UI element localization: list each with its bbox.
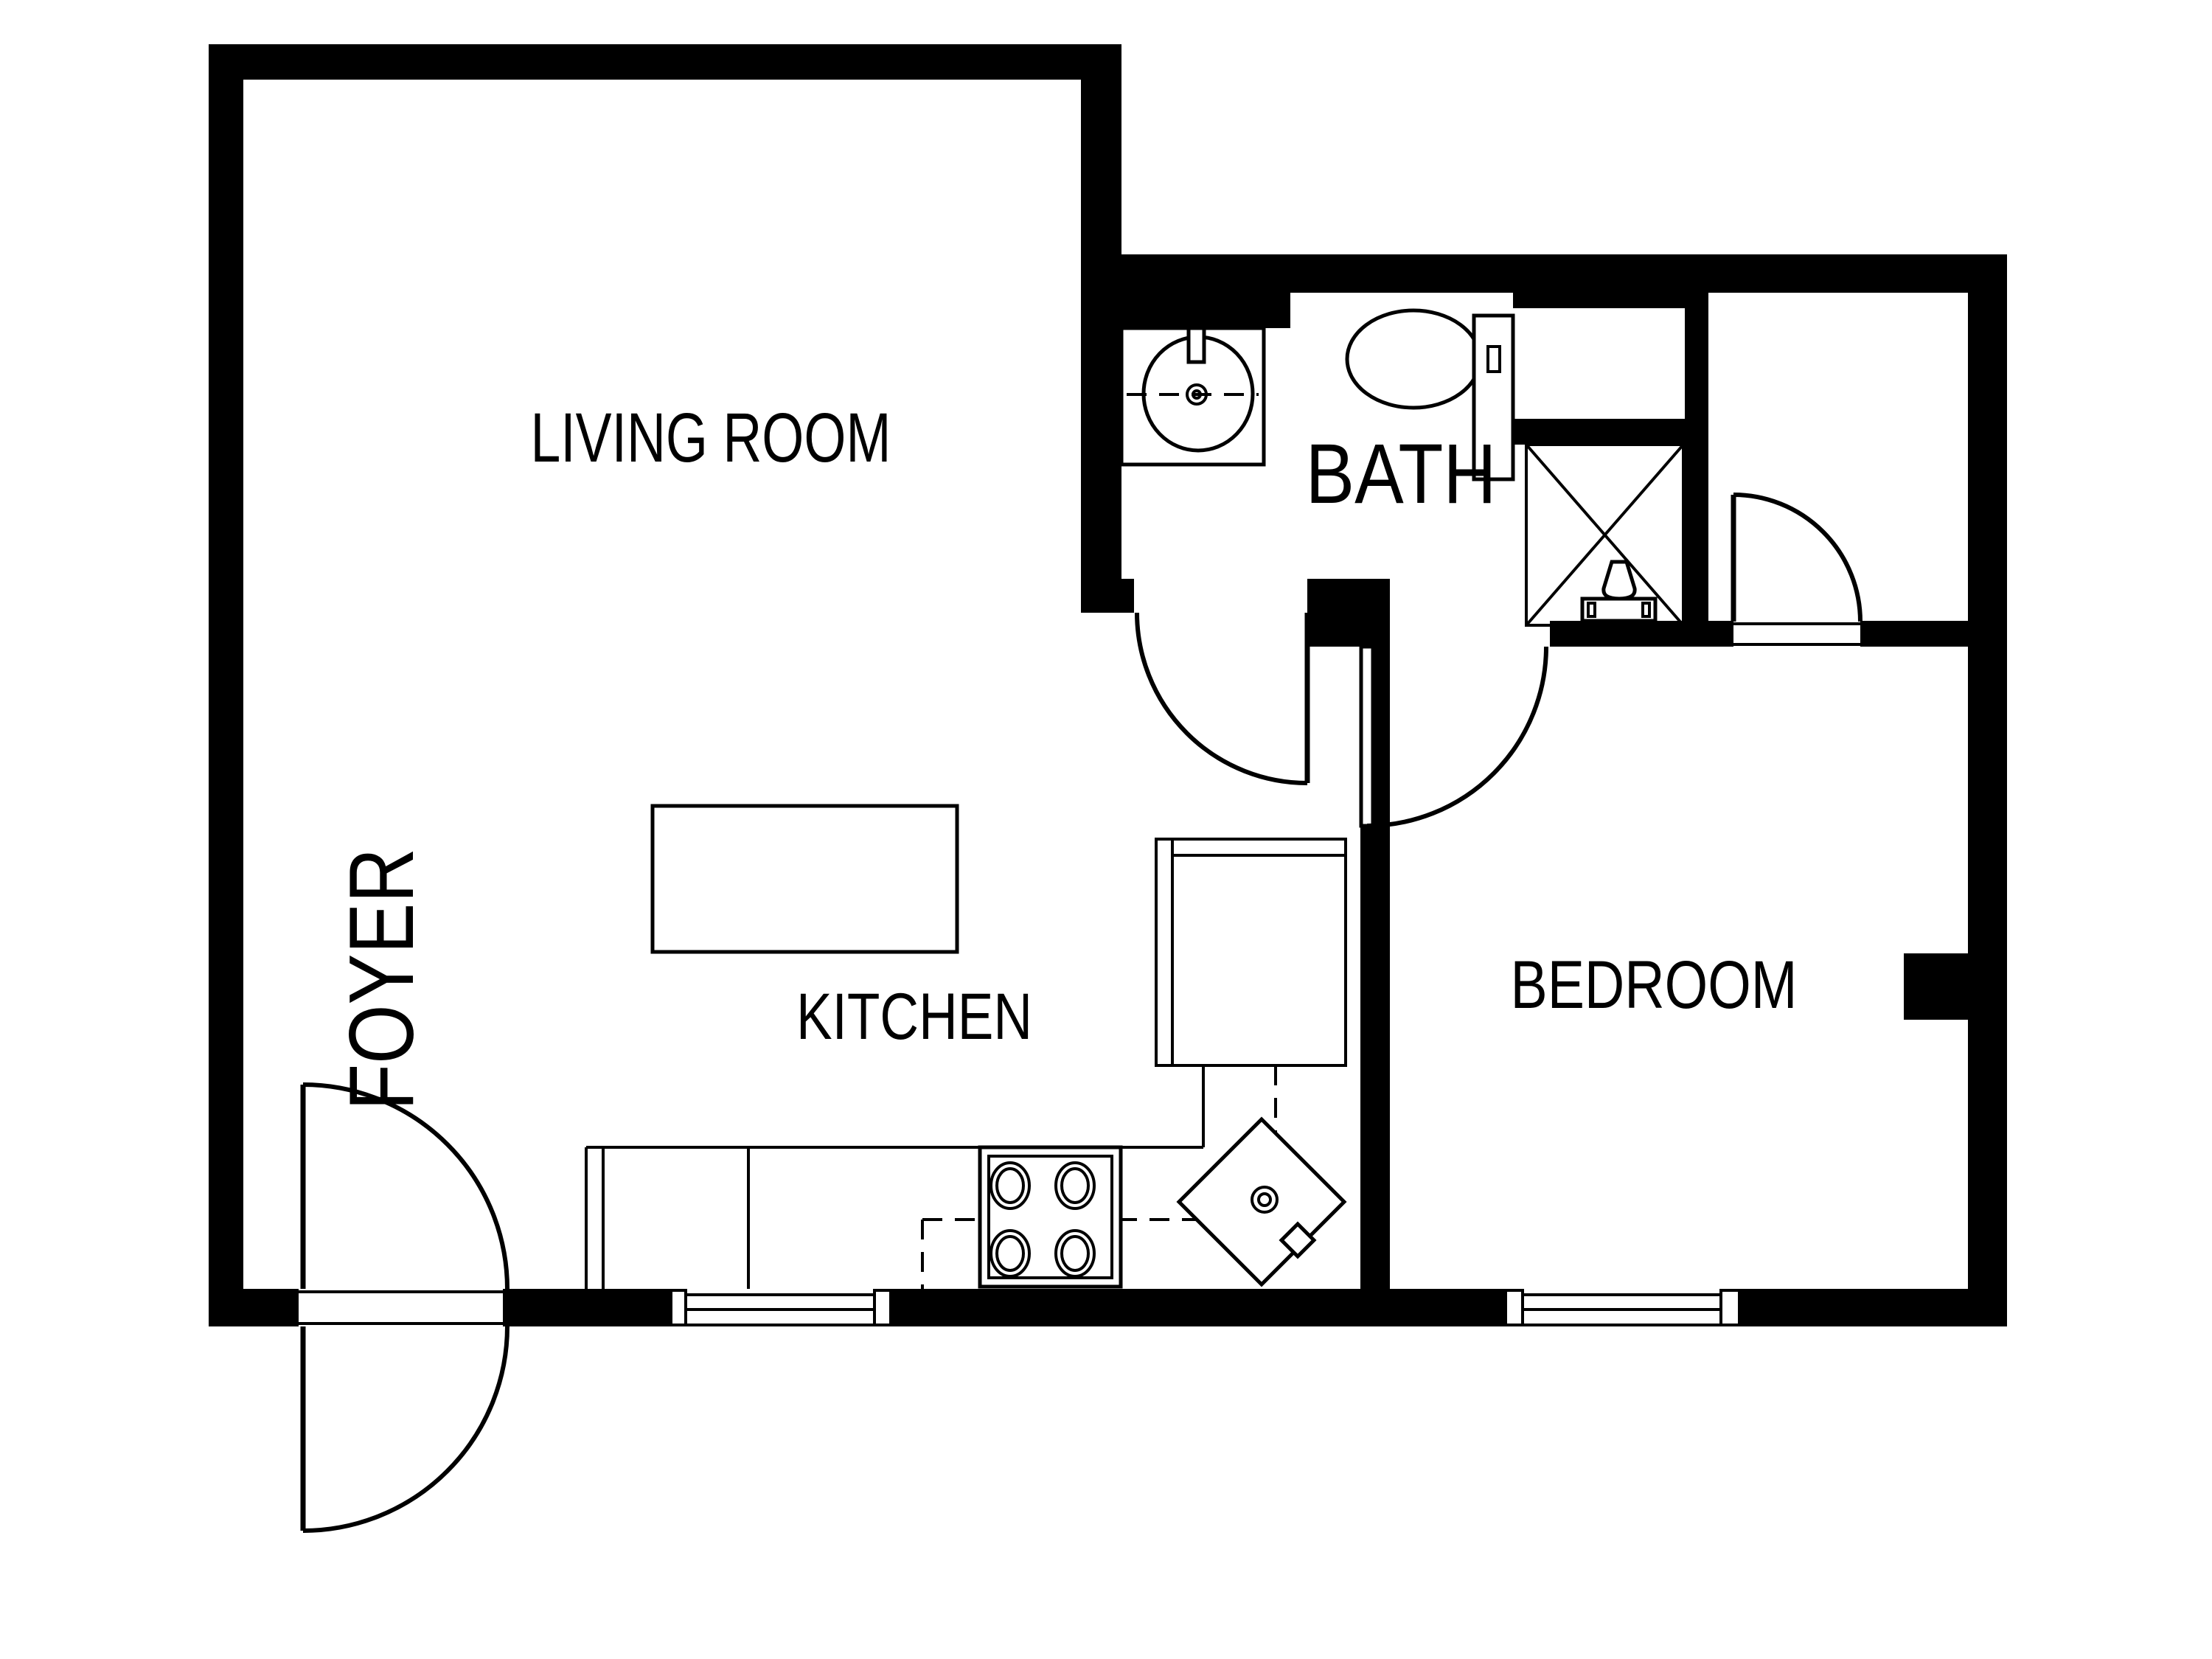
door-leaf	[1361, 647, 1373, 826]
wall-left-exterior	[209, 44, 243, 1326]
wall-bedroom-north-b	[1860, 621, 1968, 647]
door-opening	[299, 1289, 503, 1326]
bathroom-sink-icon	[1121, 328, 1264, 465]
bath-door	[1137, 613, 1307, 783]
bedroom-window	[1506, 1289, 1739, 1326]
door-swing-arc	[1137, 613, 1307, 783]
counter-upper	[1156, 839, 1346, 1065]
bath-label: BATH	[1306, 427, 1497, 521]
shower-head	[1604, 562, 1635, 599]
floor-plan-canvas: LIVING ROOM BATH KITCHEN BEDROOM FOYER	[0, 0, 2212, 1659]
bedroom-label: BEDROOM	[1511, 947, 1798, 1023]
room-labels: LIVING ROOM BATH KITCHEN BEDROOM FOYER	[331, 399, 1798, 1110]
sink-faucet	[1189, 328, 1204, 362]
door-swing-arc	[303, 1085, 507, 1289]
closet-door	[1733, 495, 1860, 644]
wall-top-living-room	[209, 44, 1121, 80]
wall-pony-above-shower	[1513, 419, 1708, 445]
wall-bath-south-left-stub	[1081, 579, 1134, 613]
kitchen-label: KITCHEN	[796, 979, 1032, 1053]
walls	[209, 44, 2007, 1326]
toilet-bowl	[1347, 310, 1480, 408]
wall-right-exterior	[1968, 254, 2007, 1326]
shower-stall-icon	[1526, 445, 1683, 625]
wall-bedroom-pilaster	[1904, 953, 1968, 1020]
door-swing-arc	[303, 1326, 507, 1531]
floor-plan: LIVING ROOM BATH KITCHEN BEDROOM FOYER	[0, 0, 2212, 1659]
stove-burners-icon	[980, 1147, 1121, 1287]
entry-door	[299, 1085, 507, 1531]
door-swing-arc	[1367, 647, 1546, 826]
living-room-label: LIVING ROOM	[531, 399, 891, 477]
door-swing-arc	[1733, 495, 1860, 622]
foyer-label: FOYER	[331, 848, 433, 1110]
wall-toilet-niche-top	[1513, 293, 1685, 308]
kitchen-window	[671, 1289, 891, 1326]
wall-living-bath-divider	[1081, 80, 1121, 613]
wall-north-bath-section	[1081, 254, 2007, 293]
wall-bath-closet-divider	[1685, 293, 1708, 647]
wall-sink-alcove-header	[1121, 293, 1290, 328]
kitchen-island	[653, 806, 957, 952]
island-counter	[653, 806, 957, 952]
